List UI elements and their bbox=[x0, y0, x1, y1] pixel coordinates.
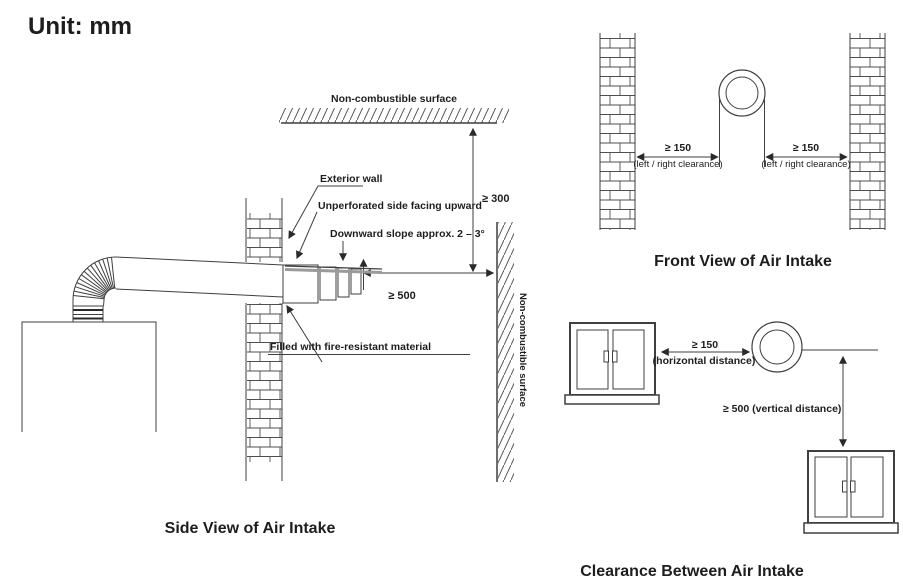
window-handle bbox=[604, 351, 609, 362]
unit-label: Unit: mm bbox=[28, 13, 132, 40]
ceiling-surface bbox=[279, 108, 509, 123]
appliance-housing bbox=[22, 322, 156, 432]
slope-label: Downward slope approx. 2 – 3° bbox=[330, 228, 485, 240]
ceiling-surface-label: Non-combustible surface bbox=[331, 93, 457, 105]
window-lower bbox=[804, 451, 898, 533]
fire-material-leader bbox=[287, 306, 322, 362]
front-right-dimension-label: ≥ 150 bbox=[793, 142, 819, 154]
window-handle bbox=[851, 481, 856, 492]
right-surface-label: Non-combustible surface bbox=[517, 293, 528, 407]
right-surface-wall bbox=[497, 222, 514, 482]
horizontal-dimension-label: ≥ 150 bbox=[692, 339, 718, 351]
air-intake-duct bbox=[116, 257, 283, 297]
side-view-diagram: Unit: mm Non-combustible surface ≥ 300 N… bbox=[22, 13, 528, 537]
window-handle bbox=[843, 481, 848, 492]
air-intake-pipe-front bbox=[719, 70, 765, 167]
window-upper bbox=[565, 323, 659, 404]
front-right-dimension-note: (left / right clearance) bbox=[761, 159, 850, 170]
air-intake-pipe-clearance bbox=[752, 322, 878, 372]
exterior-wall-label: Exterior wall bbox=[320, 173, 383, 185]
front-right-wall bbox=[850, 33, 885, 230]
vertical-dimension-label: ≥ 500 (vertical distance) bbox=[723, 403, 841, 415]
unperforated-label: Unperforated side facing upward bbox=[318, 200, 482, 212]
diagram-svg: Unit: mm Non-combustible surface ≥ 300 N… bbox=[0, 0, 903, 586]
installation-manual-page: Unit: mm Non-combustible surface ≥ 300 N… bbox=[0, 0, 903, 586]
horizontal-dimension-note: (horizontal distance) bbox=[653, 355, 756, 367]
front-left-dimension-note: (left / right clearance) bbox=[633, 159, 722, 170]
front-view-caption: Front View of Air Intake bbox=[654, 253, 832, 270]
window-sill bbox=[565, 395, 659, 404]
window-sill bbox=[804, 523, 898, 533]
side-view-caption: Side View of Air Intake bbox=[165, 520, 336, 537]
flexible-duct-elbow bbox=[73, 257, 116, 322]
clearance-diagram: ≥ 150 (horizontal distance) ≥ 500 (verti… bbox=[565, 322, 898, 580]
dimension-500-label: ≥ 500 bbox=[388, 290, 415, 302]
front-left-dimension-label: ≥ 150 bbox=[665, 142, 691, 154]
front-left-wall bbox=[600, 33, 635, 230]
exterior-wall-structure bbox=[246, 198, 282, 481]
dimension-300-label: ≥ 300 bbox=[482, 193, 509, 205]
fire-material-label: Filled with fire-resistant material bbox=[270, 341, 431, 353]
air-intake-pipe-sections bbox=[283, 265, 382, 303]
window-handle bbox=[613, 351, 618, 362]
clearance-caption: Clearance Between Air Intake bbox=[580, 563, 804, 580]
front-view-diagram: ≥ 150 (left / right clearance) ≥ 150 (le… bbox=[600, 33, 885, 270]
